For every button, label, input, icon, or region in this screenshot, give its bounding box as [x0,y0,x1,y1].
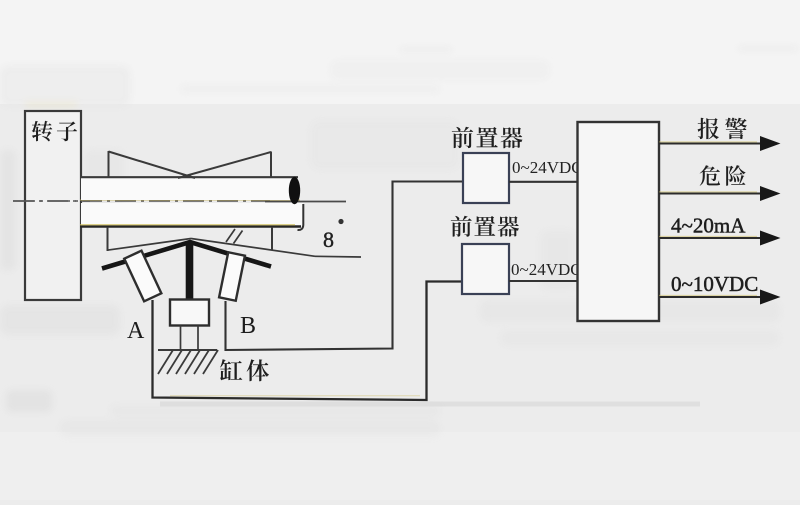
svg-text:0~10VDC: 0~10VDC [671,272,758,296]
svg-text:0~24VDC: 0~24VDC [511,260,582,279]
svg-text:0~24VDC: 0~24VDC [512,158,583,177]
svg-text:4~20mA: 4~20mA [671,214,746,238]
svg-text:B: B [240,313,256,339]
svg-text:A: A [127,318,145,344]
svg-text:8: 8 [323,227,334,252]
